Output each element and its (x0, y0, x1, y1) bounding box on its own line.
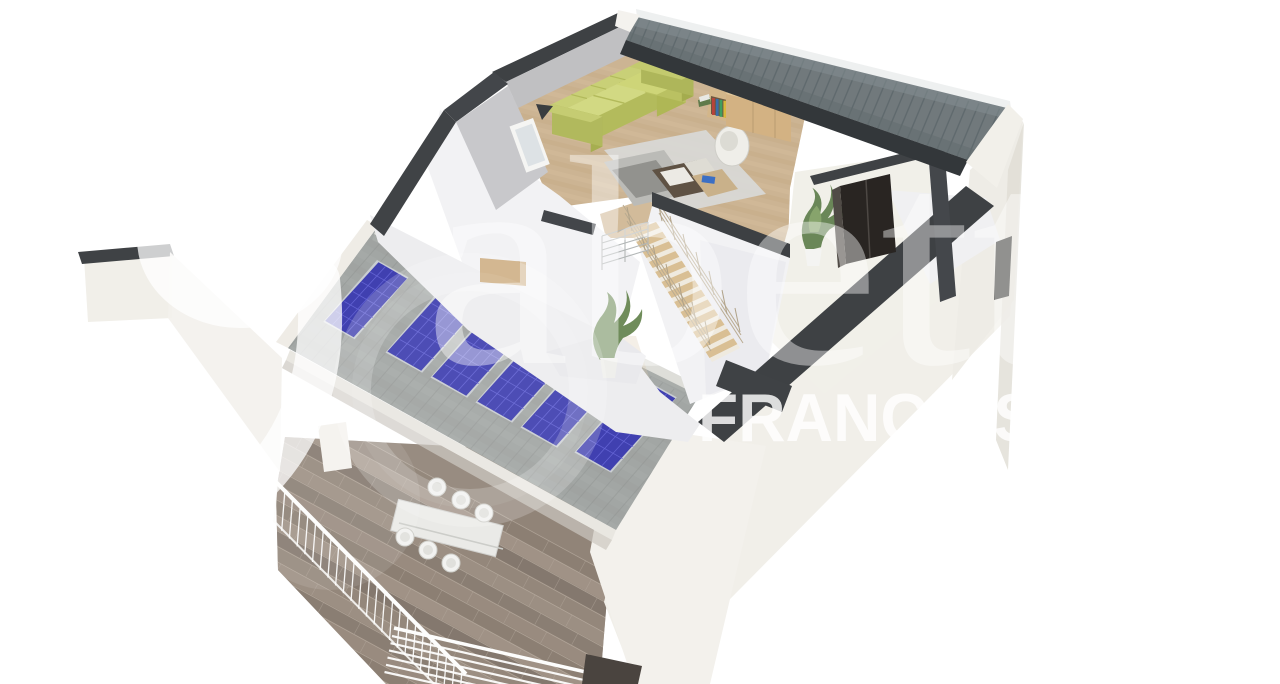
svg-text:FRANCHISING: FRANCHISING (698, 380, 1154, 456)
svg-text:abetti: abetti (424, 96, 1154, 428)
